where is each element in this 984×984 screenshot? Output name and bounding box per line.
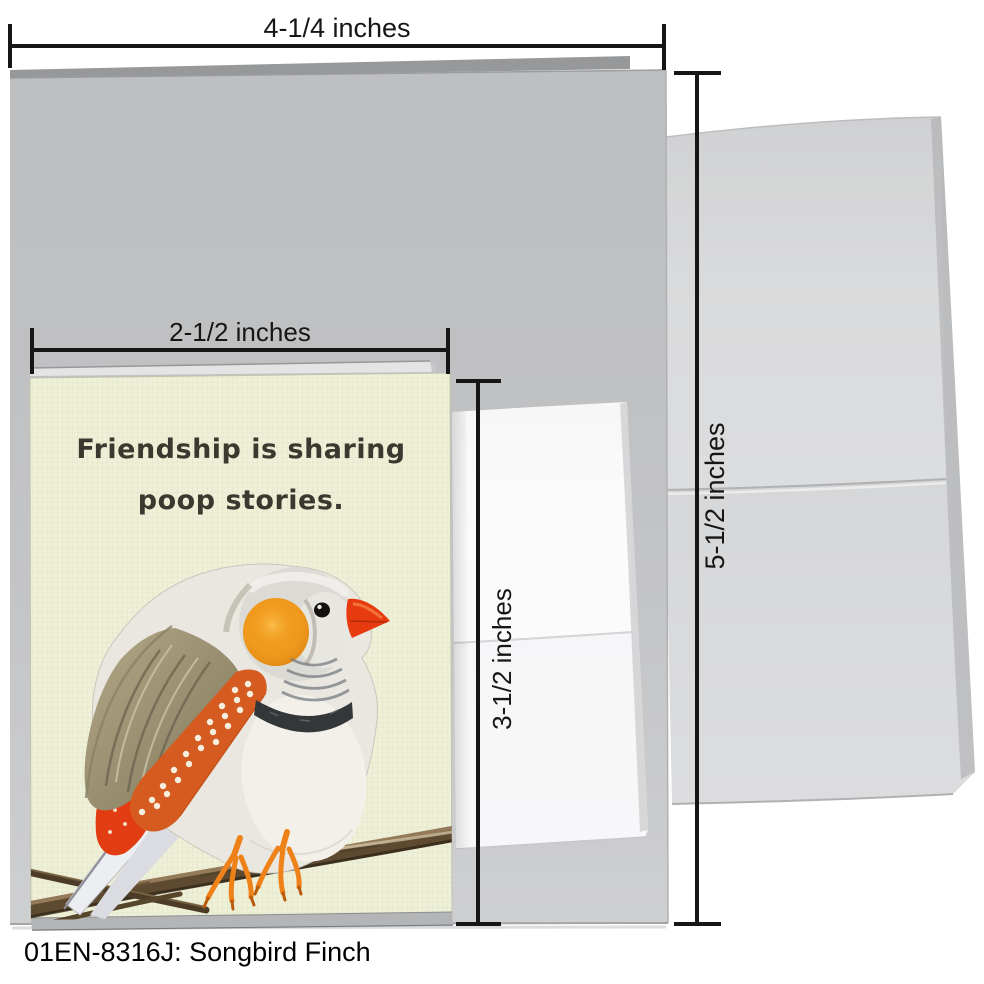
dimension-label-mini-card-height: 3-1/2 inches: [487, 574, 517, 744]
dimension-label-mini-card-width: 2-1/2 inches: [32, 317, 448, 347]
eye-highlight: [317, 605, 321, 609]
mini-envelope: [452, 402, 648, 849]
dimension-label-card-width: 4-1/4 inches: [10, 13, 664, 43]
eye: [314, 603, 330, 618]
greeting-card-product-mockup: 4-1/4 inches 2-1/2 inches 5-1/2 inches 3…: [0, 0, 984, 984]
cheek-patch-shading: [243, 598, 309, 666]
product-caption: 01EN-8316J: Songbird Finch: [24, 937, 371, 968]
card-message-line2: poop stories.: [34, 475, 448, 526]
undertail-speck: [123, 822, 127, 826]
card-message: Friendship is sharing poop stories.: [34, 424, 448, 526]
undertail-speck: [108, 830, 112, 834]
card-message-line1: Friendship is sharing: [34, 424, 448, 475]
dimension-label-card-height: 5-1/2 inches: [700, 411, 730, 581]
beak-mouth-line: [350, 621, 387, 622]
